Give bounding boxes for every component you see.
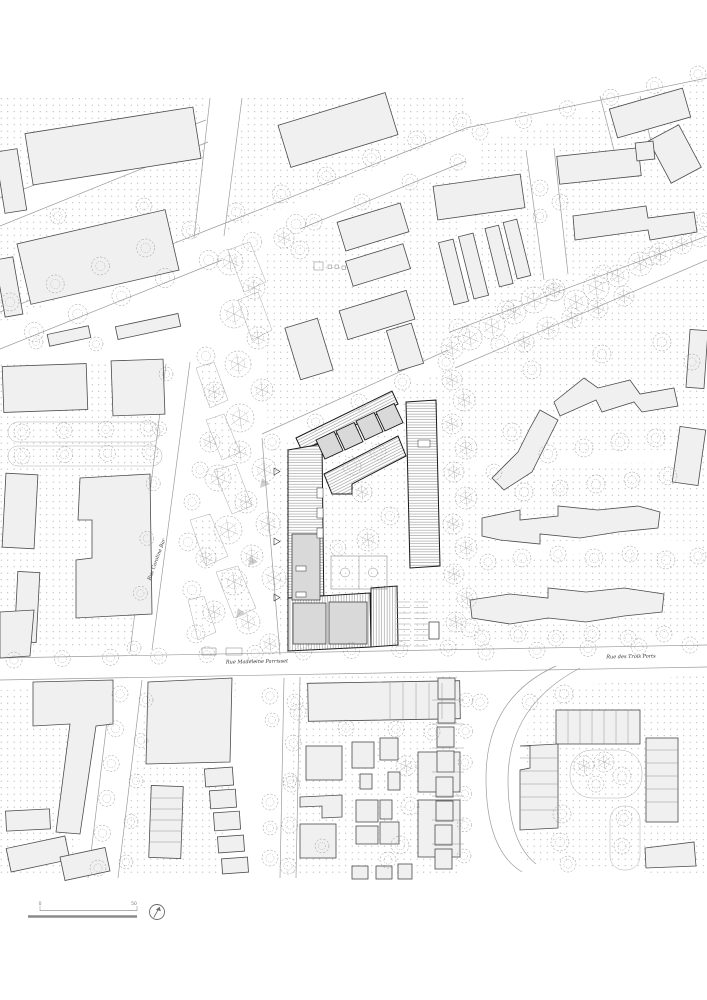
tree-icon: [116, 690, 124, 698]
building: [213, 811, 240, 831]
street-label-right: Rue des Trois Ports: [605, 654, 656, 661]
building: [222, 857, 249, 874]
tree-icon: [111, 725, 119, 733]
tree-icon: [29, 335, 43, 349]
building: [217, 835, 244, 853]
north-arrow: [150, 905, 165, 920]
building: [300, 824, 336, 858]
tree-icon: [675, 241, 682, 244]
building: [204, 767, 233, 787]
tree-icon: [248, 616, 255, 622]
planting-bed: [8, 446, 162, 466]
tree-icon: [247, 613, 248, 622]
tree-icon: [94, 825, 110, 841]
north-arrow-head: [156, 907, 161, 911]
tree-icon: [203, 439, 210, 442]
building: [438, 678, 455, 699]
tree-icon: [227, 519, 228, 530]
planting-bed: [214, 464, 252, 514]
tree-icon: [197, 347, 215, 365]
tree-icon: [261, 524, 268, 530]
tree-icon: [184, 494, 200, 510]
building: [115, 313, 180, 339]
tree-icon: [229, 360, 238, 364]
tree-icon: [107, 759, 115, 767]
tree-icon: [291, 219, 301, 229]
tree-icon: [209, 434, 210, 442]
roof-detail: [317, 488, 323, 498]
building: [635, 141, 655, 161]
tree-icon: [519, 116, 527, 124]
project-wing-roof: [371, 586, 398, 647]
building: [376, 866, 392, 879]
building: [380, 738, 398, 760]
tree-icon: [32, 338, 39, 345]
tree-icon: [244, 553, 252, 556]
tree-icon: [233, 303, 234, 314]
tree-icon: [89, 337, 103, 351]
building: [306, 746, 342, 780]
building: [352, 866, 368, 879]
tree-icon: [263, 641, 270, 644]
building: [436, 777, 453, 797]
tree-icon: [262, 794, 278, 810]
building: [149, 785, 183, 858]
project-roof-terrace: [293, 603, 326, 644]
tree-icon: [98, 829, 106, 837]
tree-icon: [201, 351, 210, 360]
building: [686, 329, 707, 388]
tree-icon: [228, 530, 229, 541]
building: [435, 849, 452, 869]
planting-bed: [196, 362, 228, 408]
tree-icon: [214, 612, 222, 615]
planting-bed: [8, 422, 160, 442]
building: [6, 809, 51, 831]
planting-bed: [610, 806, 640, 870]
site-plan-sheet: Rue Caroline Bar Rue Madeleine Parrisset…: [0, 0, 707, 1000]
tree-icon: [263, 821, 277, 835]
building: [0, 610, 34, 658]
tree-icon: [240, 452, 248, 455]
building: [209, 789, 236, 809]
tree-icon: [221, 258, 230, 262]
tree-icon: [476, 698, 484, 706]
tree-icon: [238, 364, 247, 368]
tree-icon: [261, 381, 262, 390]
building: [380, 822, 399, 844]
tree-icon: [199, 251, 218, 270]
building: [436, 801, 453, 821]
building: [380, 800, 392, 819]
tree-icon: [265, 574, 274, 578]
street-label-center: Rue Madeleine Parrisset: [225, 658, 289, 665]
tree-icon: [73, 309, 83, 319]
tree-icon: [472, 694, 488, 710]
tree-icon: [25, 323, 44, 342]
tree-icon: [694, 70, 702, 78]
tree-icon: [258, 338, 266, 341]
tree-icon: [112, 686, 128, 702]
tree-icon: [461, 790, 468, 797]
tree-icon: [99, 790, 115, 806]
tree-icon: [179, 533, 197, 551]
building: [437, 727, 454, 747]
roof-detail: [296, 592, 306, 597]
project-wing-roof: [406, 400, 440, 568]
building: [352, 742, 374, 768]
building: [435, 825, 452, 845]
building: [146, 678, 232, 764]
building: [556, 710, 640, 744]
site-plan-drawing: Rue Caroline Bar Rue Madeleine Parrisset…: [0, 0, 707, 1000]
building: [437, 751, 454, 772]
tree-icon: [270, 644, 277, 647]
tree-icon: [255, 466, 264, 470]
planting-bed: [570, 750, 642, 798]
outbuilding: [429, 622, 439, 639]
building: [388, 772, 400, 790]
tree-icon: [218, 526, 228, 530]
roof-detail: [317, 528, 323, 538]
building: [2, 473, 38, 549]
tree-icon: [240, 418, 241, 429]
tree-icon: [183, 537, 192, 546]
tree-icon: [230, 414, 240, 418]
tree-icon: [213, 603, 214, 612]
street-surface: [476, 640, 700, 649]
tree-icon: [239, 407, 240, 418]
tree-icon: [188, 498, 196, 506]
tree-icon: [204, 255, 214, 265]
tree-icon: [92, 340, 99, 347]
building: [356, 826, 378, 844]
tree-icon: [257, 470, 264, 476]
tree-icon: [228, 530, 238, 534]
tree-icon: [603, 89, 619, 105]
tree-icon: [254, 288, 262, 291]
scale-label-start: 0: [39, 901, 42, 907]
tree-icon: [265, 713, 279, 727]
tree-icon: [248, 622, 249, 631]
tree-icon: [150, 480, 157, 487]
tree-icon: [466, 590, 467, 598]
building: [438, 703, 455, 723]
tree-icon: [238, 364, 239, 374]
roof-detail: [296, 566, 306, 571]
tree-icon: [268, 716, 275, 723]
tree-icon: [254, 387, 262, 390]
tree-icon: [650, 81, 658, 89]
scale-bar: 0 50: [28, 901, 137, 917]
tree-icon: [563, 105, 571, 113]
tree-icon: [270, 644, 271, 652]
tree-icon: [462, 728, 469, 735]
tree-icon: [267, 515, 268, 524]
roof-detail: [317, 508, 323, 518]
building: [520, 744, 558, 830]
building: [308, 681, 461, 722]
tree-icon: [454, 158, 462, 166]
tree-icon: [559, 101, 575, 117]
tree-icon: [262, 688, 278, 704]
planting-bed: [188, 596, 216, 640]
tree-icon: [248, 622, 257, 626]
tree-icon: [277, 235, 284, 238]
tree-icon: [240, 418, 250, 422]
tree-icon: [476, 128, 484, 136]
tree-icon: [234, 314, 244, 318]
tree-icon: [237, 354, 238, 364]
tree-icon: [103, 756, 119, 772]
tree-icon: [196, 466, 204, 474]
tree-icon: [646, 78, 662, 94]
tree-icon: [234, 314, 235, 325]
tree-icon: [598, 308, 605, 311]
tree-icon: [267, 578, 274, 584]
tree-icon: [462, 759, 469, 766]
tree-icon: [116, 291, 126, 301]
tree-icon: [210, 442, 211, 450]
bench-wedge: [260, 478, 270, 488]
tree-icon: [266, 824, 273, 831]
tree-icon: [258, 338, 259, 347]
tree-icon: [262, 390, 263, 399]
building: [356, 800, 378, 822]
tree-icon: [130, 644, 137, 651]
tree-icon: [187, 585, 196, 594]
tree-icon: [306, 214, 322, 230]
building: [111, 359, 165, 416]
tree-icon: [283, 230, 284, 238]
tree-icon: [266, 692, 274, 700]
tree-icon: [548, 328, 556, 331]
tree-icon: [269, 636, 270, 644]
tree-icon: [262, 850, 278, 866]
building: [47, 326, 91, 346]
project-roof-terrace: [329, 602, 367, 644]
tree-icon: [572, 318, 579, 321]
tree-icon: [652, 251, 660, 254]
building: [398, 864, 412, 879]
tree-icon: [516, 112, 532, 128]
roof-detail: [418, 440, 430, 447]
tree-icon: [251, 547, 252, 556]
tree-icon: [472, 124, 488, 140]
tree-icon: [230, 262, 231, 272]
tree-icon: [224, 310, 234, 314]
planting-bed: [190, 514, 228, 566]
building: [360, 774, 372, 789]
tree-icon: [183, 581, 201, 599]
tree-icon: [192, 462, 208, 478]
tree-icon: [259, 520, 268, 524]
tree-icon: [287, 215, 306, 234]
tree-icon: [214, 612, 215, 621]
building: [646, 738, 678, 822]
tree-icon: [103, 794, 111, 802]
tree-icon: [284, 238, 291, 241]
scale-label-end: 50: [131, 901, 137, 907]
tree-icon: [467, 598, 468, 606]
tree-icon: [240, 452, 241, 461]
tree-icon: [241, 622, 248, 628]
tree-icon: [266, 798, 274, 806]
tree-icon: [624, 296, 631, 299]
tree-icon: [108, 721, 124, 737]
building: [2, 364, 88, 413]
tree-icon: [239, 618, 248, 622]
tree-icon: [266, 854, 274, 862]
